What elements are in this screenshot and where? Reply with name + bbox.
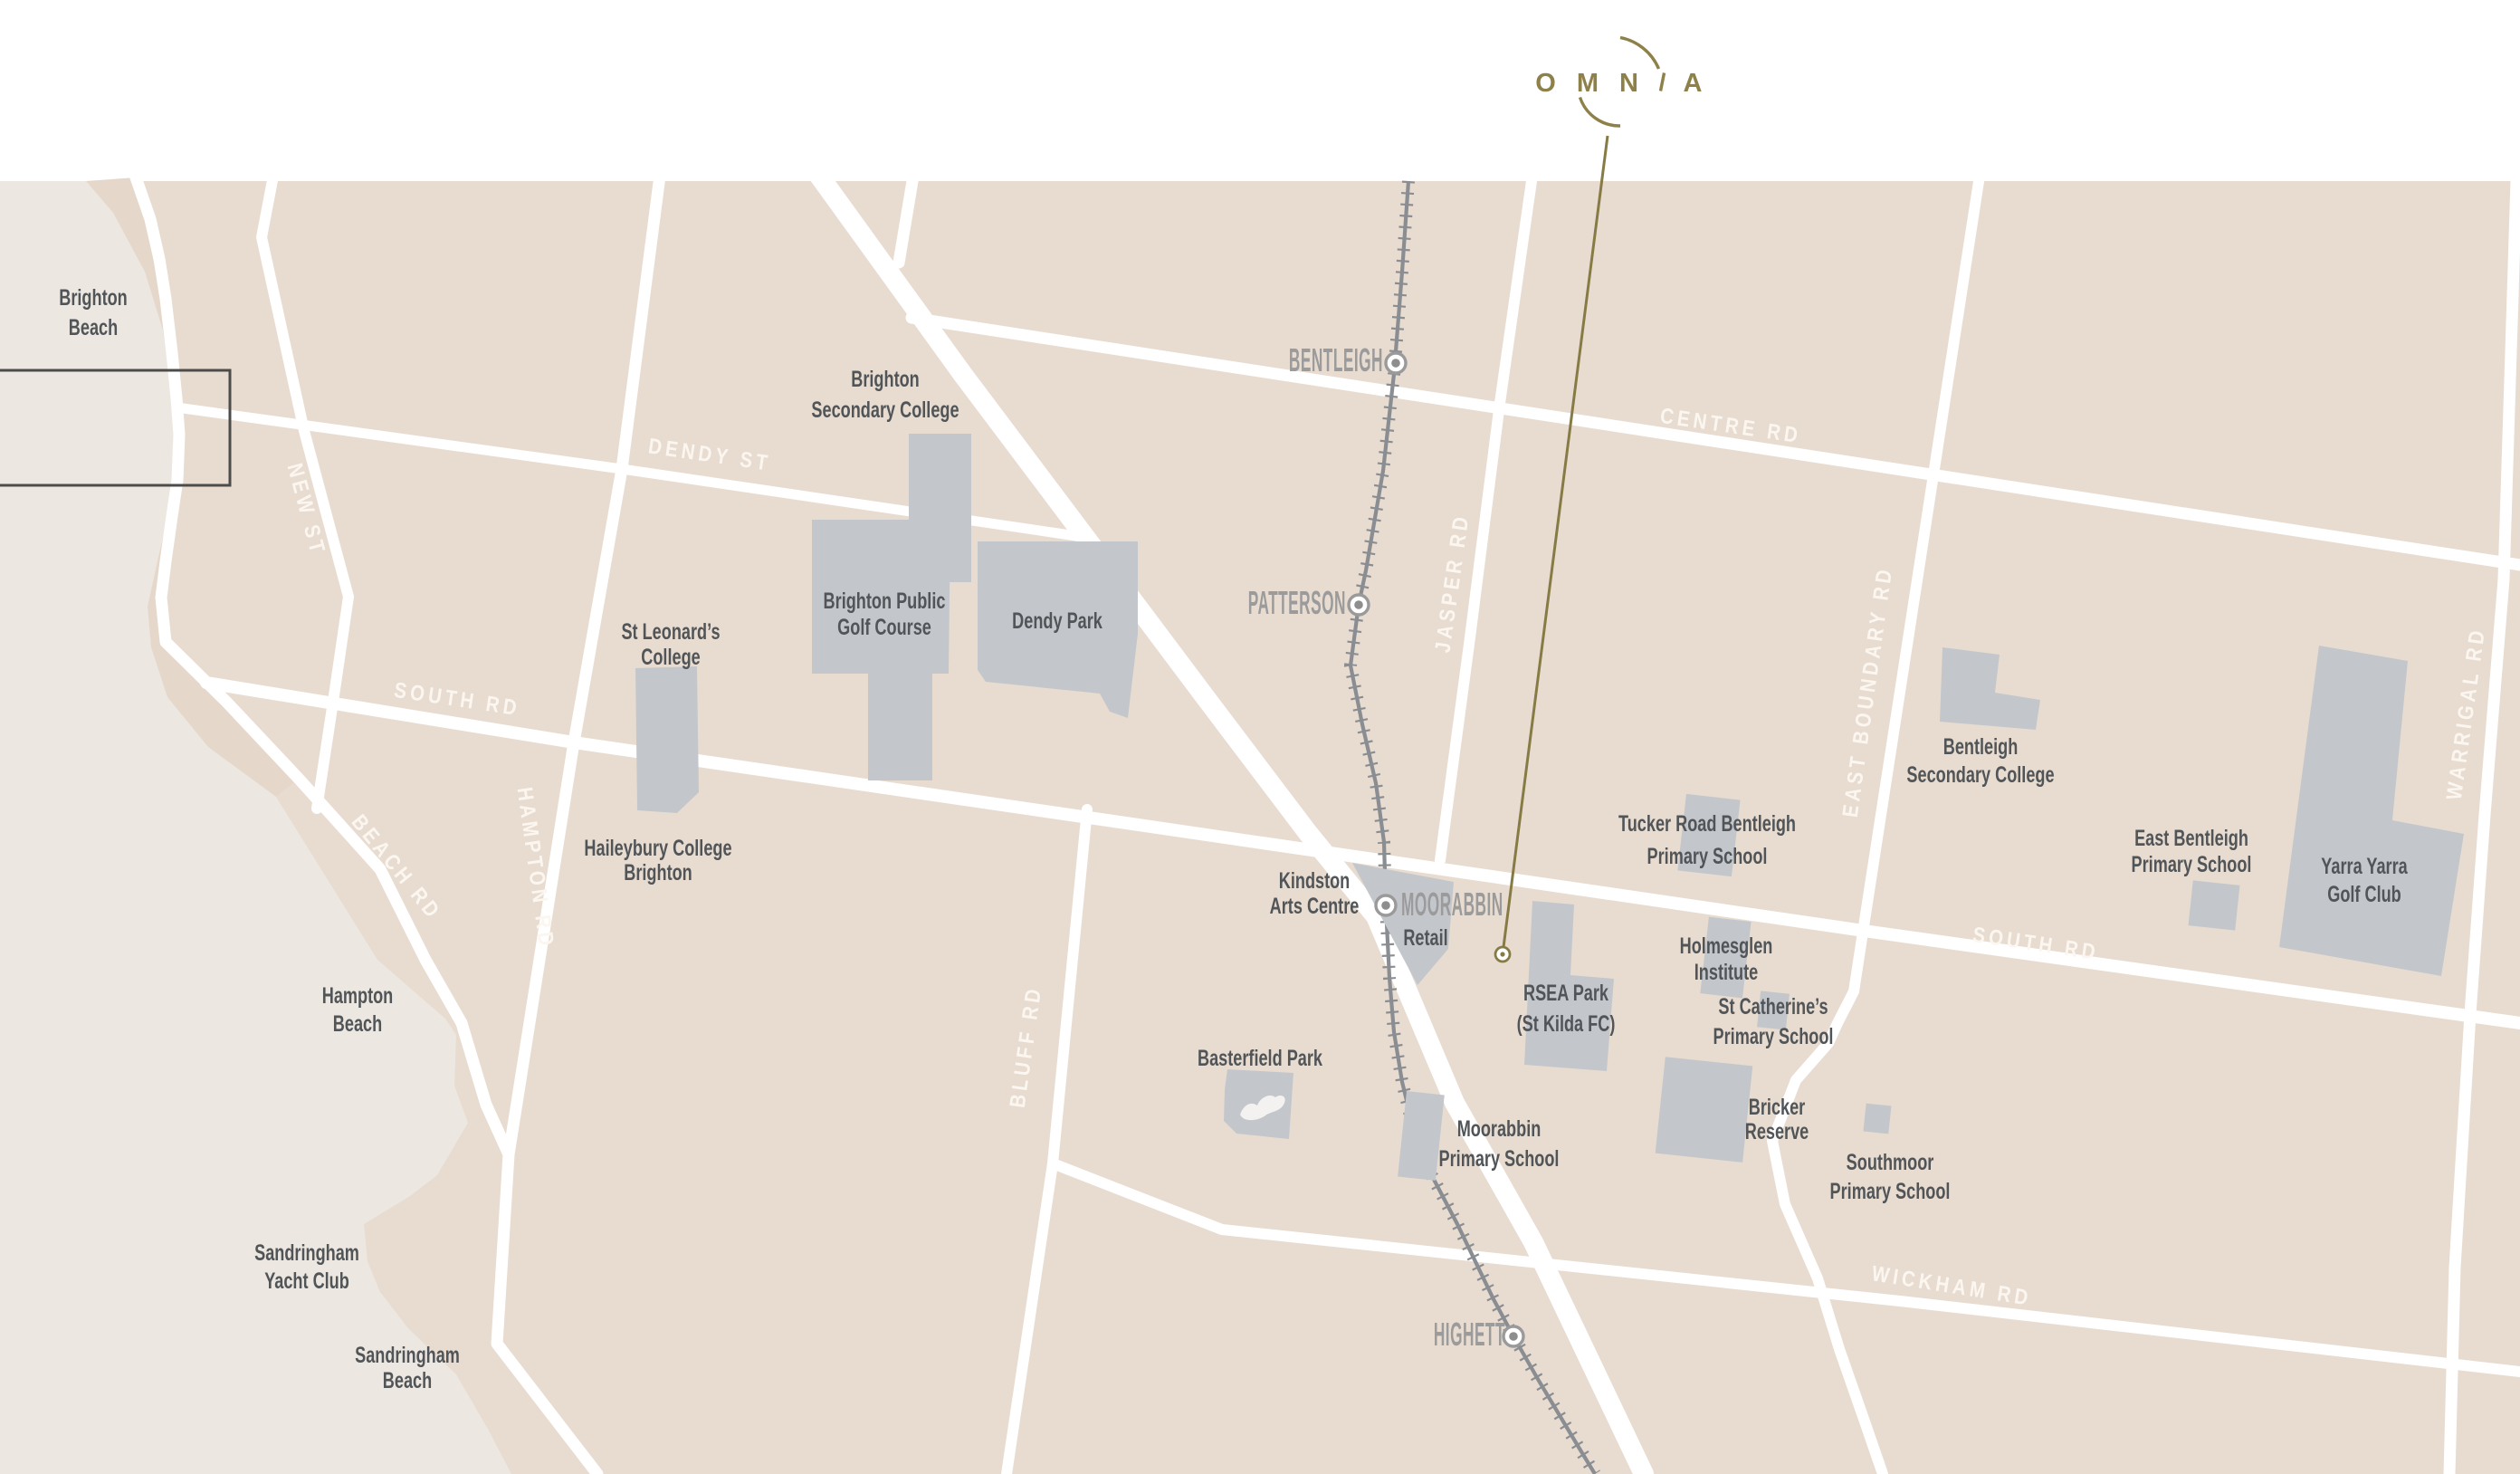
svg-text:HIGHETT: HIGHETT: [1434, 1316, 1505, 1353]
svg-text:Brighton: Brighton: [851, 366, 919, 392]
svg-text:A: A: [1684, 69, 1703, 98]
svg-text:Institute: Institute: [1694, 959, 1758, 985]
svg-text:Reserve: Reserve: [1745, 1118, 1809, 1144]
svg-text:M: M: [1577, 69, 1599, 98]
svg-text:Primary School: Primary School: [1439, 1145, 1560, 1172]
svg-text:Brighton Public: Brighton Public: [824, 588, 946, 614]
svg-text:N: N: [1619, 69, 1638, 98]
svg-text:(St Kilda FC): (St Kilda FC): [1517, 1010, 1616, 1037]
svg-text:Golf Club: Golf Club: [2327, 881, 2401, 907]
svg-text:Primary School: Primary School: [2132, 851, 2252, 877]
svg-text:College: College: [641, 644, 700, 670]
svg-text:Sandringham: Sandringham: [355, 1342, 460, 1368]
svg-text:Tucker Road Bentleigh: Tucker Road Bentleigh: [1618, 810, 1796, 837]
svg-text:MOORABBIN: MOORABBIN: [1401, 885, 1503, 923]
svg-text:Yacht Club: Yacht Club: [264, 1268, 349, 1294]
svg-text:O: O: [1535, 69, 1556, 98]
svg-text:Arts Centre: Arts Centre: [1270, 893, 1360, 919]
svg-text:BENTLEIGH: BENTLEIGH: [1289, 341, 1383, 378]
svg-text:St Leonard’s: St Leonard’s: [621, 618, 720, 645]
svg-text:Basterfield Park: Basterfield Park: [1198, 1045, 1323, 1071]
svg-text:Bricker: Bricker: [1749, 1094, 1806, 1120]
svg-text:Retail: Retail: [1403, 924, 1447, 951]
svg-text:Primary School: Primary School: [1713, 1023, 1834, 1049]
svg-text:Holmesglen: Holmesglen: [1680, 933, 1773, 959]
svg-text:Beach: Beach: [69, 314, 118, 340]
svg-text:East Bentleigh: East Bentleigh: [2134, 825, 2248, 851]
svg-text:Dendy Park: Dendy Park: [1012, 608, 1102, 634]
svg-text:Kindston: Kindston: [1279, 867, 1351, 894]
svg-text:Sandringham: Sandringham: [254, 1239, 359, 1266]
svg-text:RSEA Park: RSEA Park: [1523, 980, 1609, 1006]
svg-text:Hampton: Hampton: [322, 982, 394, 1009]
svg-text:Golf Course: Golf Course: [837, 614, 931, 640]
svg-text:Yarra Yarra: Yarra Yarra: [2321, 853, 2408, 879]
svg-text:Primary School: Primary School: [1647, 843, 1768, 869]
svg-text:Moorabbin: Moorabbin: [1457, 1115, 1542, 1142]
svg-text:Beach: Beach: [383, 1367, 432, 1393]
svg-text:Secondary College: Secondary College: [811, 397, 959, 423]
svg-text:St Catherine’s: St Catherine’s: [1718, 993, 1828, 1019]
svg-text:Brighton: Brighton: [624, 859, 692, 885]
svg-text:Haileybury College: Haileybury College: [584, 835, 731, 861]
svg-text:Brighton: Brighton: [59, 284, 127, 311]
svg-text:Beach: Beach: [333, 1010, 382, 1037]
svg-text:PATTERSON: PATTERSON: [1248, 584, 1346, 621]
svg-text:Southmoor: Southmoor: [1847, 1149, 1934, 1175]
svg-text:Secondary College: Secondary College: [1906, 761, 2054, 788]
svg-text:Bentleigh: Bentleigh: [1943, 733, 2019, 760]
svg-text:Primary School: Primary School: [1830, 1178, 1951, 1204]
